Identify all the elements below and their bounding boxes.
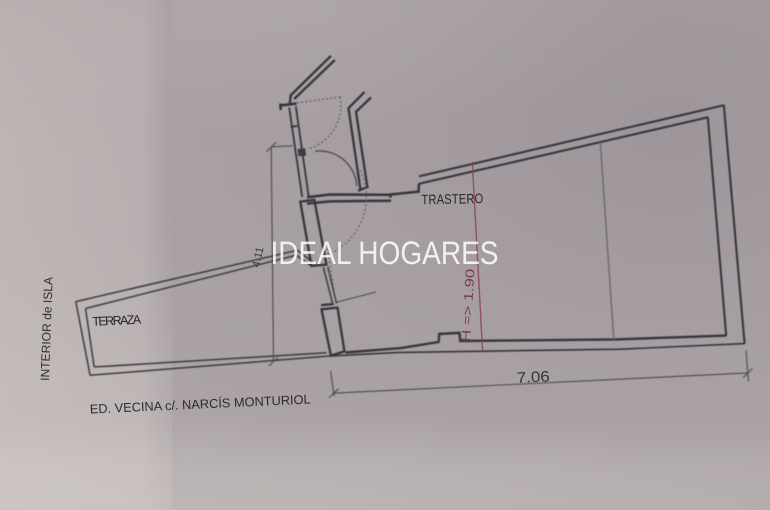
svg-text:7.06: 7.06 <box>516 368 550 387</box>
svg-text:IDEAL HOGARES: IDEAL HOGARES <box>271 235 499 271</box>
svg-text:TERRAZA: TERRAZA <box>92 313 142 329</box>
